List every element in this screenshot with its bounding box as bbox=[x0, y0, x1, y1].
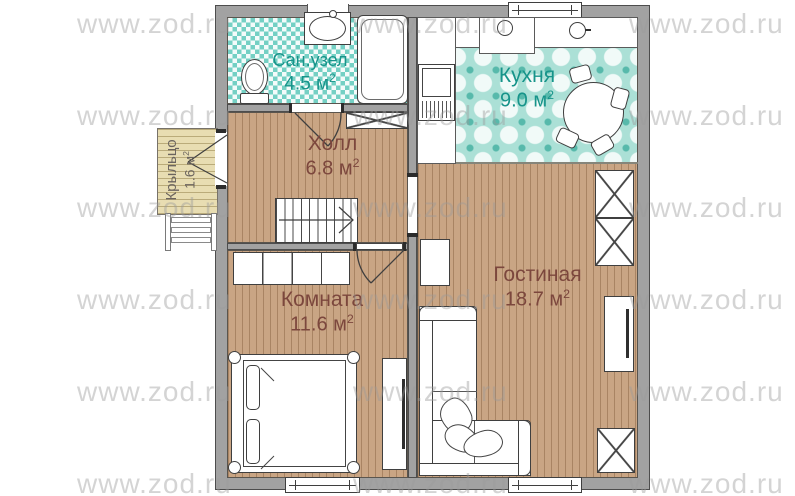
coffee-table-x bbox=[597, 428, 635, 473]
room-name: Крыльцо bbox=[163, 118, 181, 222]
dresser bbox=[420, 239, 450, 286]
wardrobe bbox=[233, 252, 350, 285]
bed-pillow bbox=[246, 419, 260, 464]
room-name: Гостиная bbox=[460, 262, 615, 287]
wall-hall-living bbox=[408, 17, 417, 478]
room-name: Холл bbox=[265, 131, 400, 156]
watermark-text: www.zod.ru bbox=[629, 192, 784, 224]
watermark-text: www.zod.ru bbox=[629, 100, 784, 132]
floor-plan: Сан.узел 4.5 м2 Кухня 9.0 м2 Холл 6.8 м2… bbox=[0, 0, 795, 496]
watermark-text: www.zod.ru bbox=[629, 284, 784, 316]
room-name: Комната bbox=[247, 287, 397, 312]
room-label-living: Гостиная 18.7 м2 bbox=[460, 262, 615, 312]
room-name: Сан.узел bbox=[235, 50, 385, 72]
room-label-room: Комната 11.6 м2 bbox=[247, 287, 397, 337]
sofa-back-bottom bbox=[419, 463, 531, 476]
watermark-text: www.zod.ru bbox=[629, 468, 784, 496]
hall-cabinet bbox=[346, 112, 408, 129]
bathroom-door-jamb bbox=[341, 103, 344, 113]
porch-step bbox=[171, 227, 211, 233]
bed-post bbox=[347, 461, 360, 474]
sofa-armrest bbox=[518, 420, 531, 476]
kitchen-sink-bowl bbox=[422, 68, 451, 97]
cabinet-x bbox=[595, 218, 634, 266]
room-area: 9.0 м2 bbox=[452, 88, 602, 113]
porch-step bbox=[171, 237, 211, 243]
room-label-kitchen: Кухня 9.0 м2 bbox=[452, 63, 602, 113]
porch-steps-rail bbox=[211, 213, 217, 251]
room-area: 4.5 м2 bbox=[235, 72, 385, 96]
bathroom-sink bbox=[309, 16, 346, 41]
room-door-jamb bbox=[353, 242, 356, 251]
wall-hall-room bbox=[227, 243, 356, 250]
sofa-cushion-line bbox=[433, 391, 477, 392]
watermark-text: www.zod.ru bbox=[77, 8, 232, 40]
living-door-jamb bbox=[407, 173, 418, 177]
entry-door-opening bbox=[215, 132, 227, 186]
room-area: 11.6 м2 bbox=[247, 312, 397, 337]
kitchen-window bbox=[508, 2, 582, 18]
cabinet-x bbox=[595, 170, 634, 218]
living-door-opening bbox=[408, 176, 417, 234]
stove-knob bbox=[585, 29, 591, 31]
living-window bbox=[508, 477, 582, 493]
entry-door-jamb bbox=[216, 185, 226, 189]
kitchen-drainer bbox=[422, 101, 451, 118]
watermark-text: www.zod.ru bbox=[77, 468, 232, 496]
hob-burner bbox=[497, 20, 513, 36]
living-door-jamb bbox=[407, 233, 418, 237]
bathroom-door-jamb bbox=[289, 103, 292, 113]
room-door-leaf bbox=[356, 243, 403, 250]
room-name: Кухня bbox=[452, 63, 602, 88]
watermark-text: www.zod.ru bbox=[629, 376, 784, 408]
room-area: 6.8 м2 bbox=[265, 156, 400, 181]
bed-post bbox=[228, 461, 241, 474]
tv-living bbox=[626, 309, 629, 358]
bathroom-door-opening bbox=[292, 104, 341, 112]
entry-door-jamb bbox=[216, 129, 226, 133]
room-label-hall: Холл 6.8 м2 bbox=[265, 131, 400, 181]
faucet bbox=[329, 10, 337, 18]
room-label-bathroom: Сан.узел 4.5 м2 bbox=[235, 50, 385, 96]
tv-room bbox=[402, 379, 405, 449]
watermark-text: www.zod.ru bbox=[77, 376, 232, 408]
room-door-jamb bbox=[403, 242, 406, 251]
room-area: 1.6 м2 bbox=[181, 118, 198, 222]
bed-pillow bbox=[246, 365, 260, 410]
staircase bbox=[275, 198, 358, 243]
bed-post bbox=[347, 351, 360, 364]
room-window bbox=[285, 477, 360, 493]
stove-burner bbox=[569, 22, 586, 39]
watermark-text: www.zod.ru bbox=[629, 8, 784, 40]
room-area: 18.7 м2 bbox=[460, 287, 615, 312]
room-label-porch: Крыльцо 1.6 м2 bbox=[163, 118, 207, 222]
watermark-text: www.zod.ru bbox=[77, 284, 232, 316]
sofa-back-left bbox=[419, 306, 433, 476]
bed-post bbox=[228, 351, 241, 364]
